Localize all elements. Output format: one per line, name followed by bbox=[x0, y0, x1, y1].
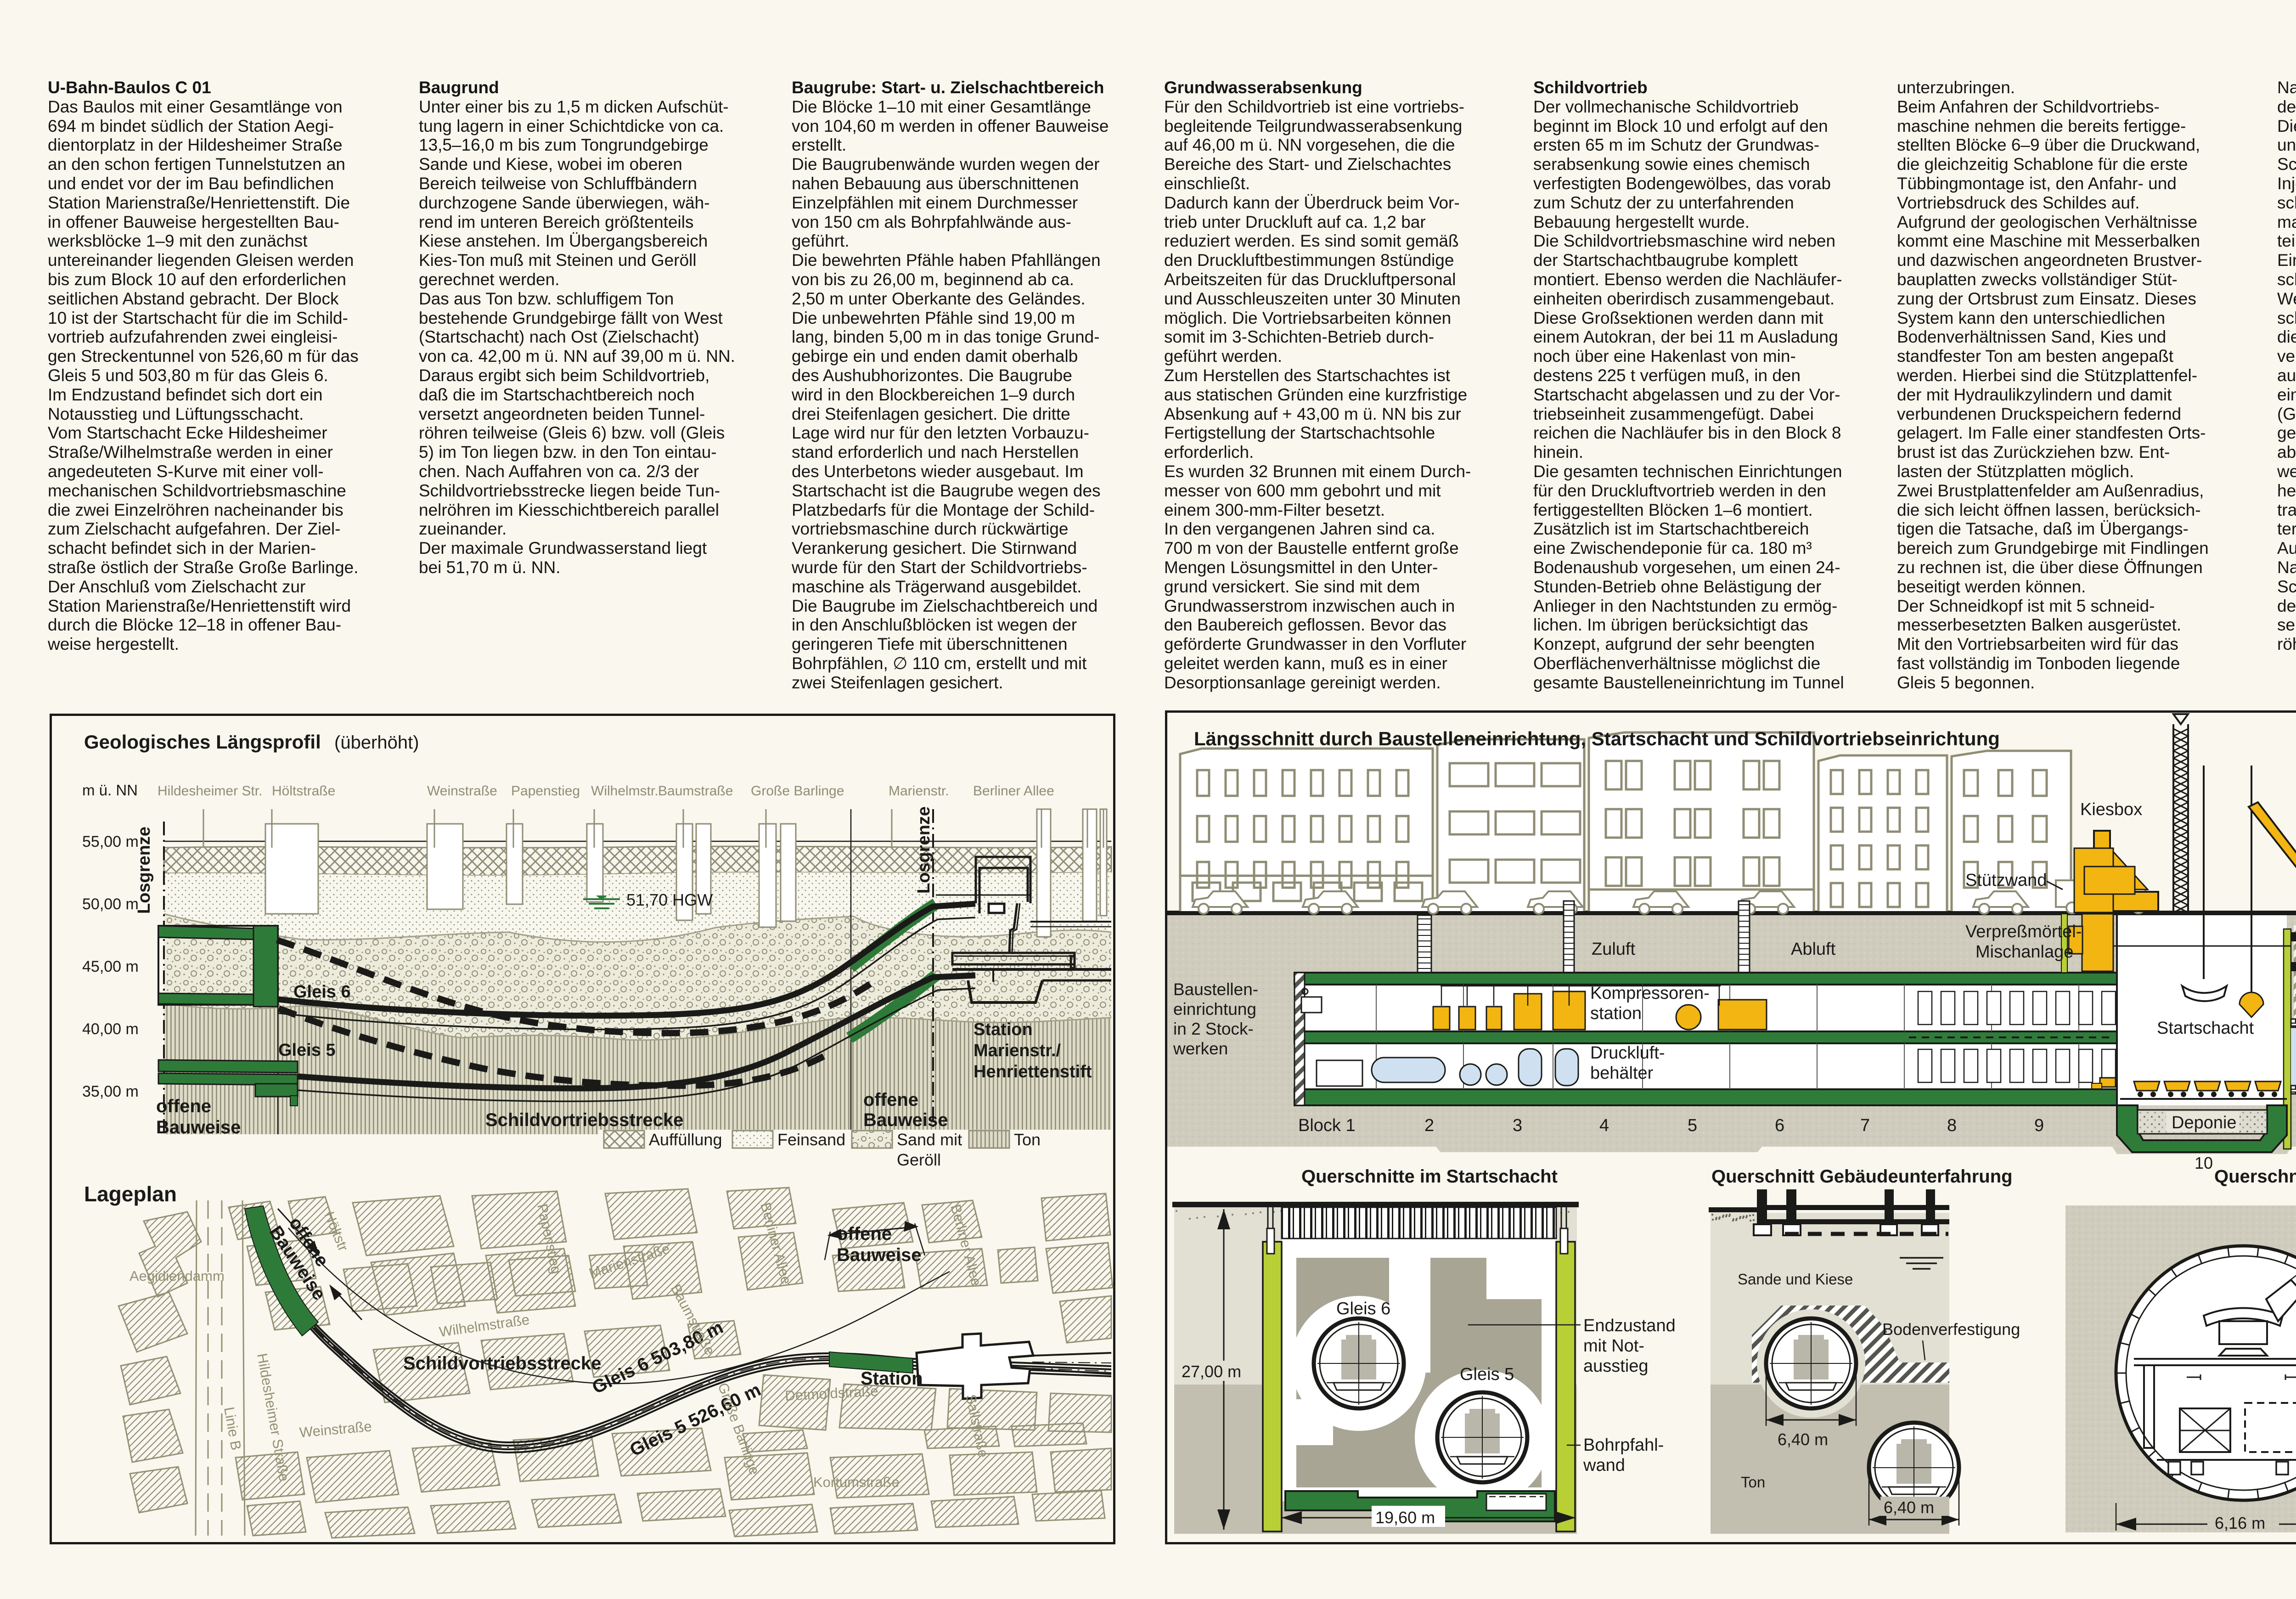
svg-text:Aegidiendamm: Aegidiendamm bbox=[129, 1268, 225, 1284]
svg-text:Stützwand: Stützwand bbox=[1965, 871, 2047, 890]
svg-text:behälter: behälter bbox=[1590, 1064, 1654, 1083]
svg-text:5: 5 bbox=[1688, 1116, 1697, 1135]
svg-text:Verpreßmörtel-: Verpreßmörtel- bbox=[1965, 922, 2082, 941]
svg-text:station: station bbox=[1590, 1004, 1642, 1023]
svg-text:27,00 m: 27,00 m bbox=[1182, 1362, 1241, 1381]
svg-text:Querschnitt Gebäudeunterfahrun: Querschnitt Gebäudeunterfahrung bbox=[1711, 1166, 2013, 1187]
svg-text:7: 7 bbox=[1860, 1116, 1870, 1135]
svg-text:in 2 Stock-: in 2 Stock- bbox=[1173, 1019, 1254, 1038]
svg-text:Schildvortriebsstrecke: Schildvortriebsstrecke bbox=[403, 1353, 601, 1374]
svg-text:9: 9 bbox=[2034, 1116, 2044, 1135]
svg-text:Gleis 6: Gleis 6 bbox=[1336, 1299, 1390, 1318]
svg-text:Querschnitte durch die Vortrie: Querschnitte durch die Vortriebseinheit bbox=[2214, 1166, 2296, 1187]
svg-text:6,16 m: 6,16 m bbox=[2215, 1514, 2265, 1532]
svg-text:Linie B: Linie B bbox=[221, 1406, 244, 1451]
svg-text:Abluft: Abluft bbox=[1791, 940, 1836, 959]
svg-text:6: 6 bbox=[1775, 1116, 1784, 1135]
svg-text:Längsschnitt durch Baustellene: Längsschnitt durch Baustelleneinrichtung… bbox=[1194, 728, 2000, 749]
svg-text:8: 8 bbox=[1947, 1116, 1957, 1135]
svg-text:mit Not-: mit Not- bbox=[1583, 1336, 1644, 1356]
svg-text:Sande und Kiese: Sande und Kiese bbox=[1738, 1271, 1853, 1288]
svg-text:Baustellen-: Baustellen- bbox=[1173, 980, 1258, 999]
svg-text:offene: offene bbox=[837, 1224, 892, 1244]
svg-text:wand: wand bbox=[1583, 1456, 1625, 1475]
svg-text:19,60 m: 19,60 m bbox=[1375, 1508, 1435, 1527]
svg-text:3: 3 bbox=[1513, 1116, 1522, 1135]
svg-text:Deponie: Deponie bbox=[2172, 1113, 2237, 1132]
svg-text:Gleis 5: Gleis 5 bbox=[1460, 1365, 1514, 1384]
svg-text:Kortumstraße: Kortumstraße bbox=[813, 1474, 900, 1490]
svg-text:4: 4 bbox=[1599, 1116, 1609, 1135]
svg-text:Wilhelmstraße: Wilhelmstraße bbox=[438, 1312, 530, 1340]
svg-text:ausstieg: ausstieg bbox=[1583, 1357, 1649, 1376]
svg-text:werken: werken bbox=[1173, 1039, 1228, 1058]
svg-text:2: 2 bbox=[1424, 1116, 1434, 1135]
svg-text:Block 1: Block 1 bbox=[1298, 1116, 1356, 1135]
svg-text:Druckluft-: Druckluft- bbox=[1590, 1043, 1665, 1063]
svg-text:Mischanlage: Mischanlage bbox=[1975, 942, 2073, 962]
svg-text:Bodenverfestigung: Bodenverfestigung bbox=[1882, 1320, 2020, 1339]
svg-text:Ton: Ton bbox=[1741, 1474, 1765, 1491]
svg-text:Startschacht: Startschacht bbox=[2157, 1019, 2254, 1038]
svg-text:Bauweise: Bauweise bbox=[837, 1245, 922, 1265]
svg-text:Endzustand: Endzustand bbox=[1583, 1316, 1676, 1335]
svg-text:Zuluft: Zuluft bbox=[1592, 940, 1635, 959]
svg-text:Bohrpfahl-: Bohrpfahl- bbox=[1583, 1436, 1664, 1455]
svg-text:einrichtung: einrichtung bbox=[1173, 1000, 1256, 1019]
svg-text:Kiesbox: Kiesbox bbox=[2080, 800, 2142, 819]
svg-text:6,40 m: 6,40 m bbox=[1884, 1498, 1934, 1517]
svg-text:Kompressoren-: Kompressoren- bbox=[1590, 984, 1710, 1003]
svg-text:10: 10 bbox=[2195, 1154, 2213, 1172]
svg-text:Weinstraße: Weinstraße bbox=[299, 1418, 372, 1441]
svg-text:6,40 m: 6,40 m bbox=[1778, 1430, 1828, 1449]
svg-text:Querschnitte im Startschacht: Querschnitte im Startschacht bbox=[1301, 1166, 1558, 1187]
